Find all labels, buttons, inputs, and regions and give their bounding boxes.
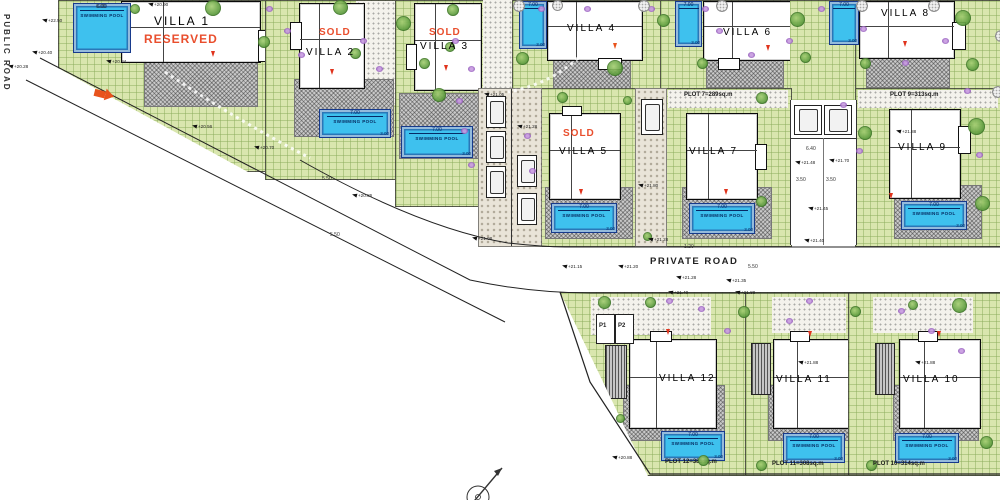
survey-flag-icon [676, 274, 682, 279]
pool-width-label: 3.00 [606, 226, 615, 231]
plot-villa-1: 6.00 SWIMMING POOL VILLA 1 RESERVED [58, 0, 267, 172]
plot-villa-11: 7.00 SWIMMING POOL 3.00 VILLA 11 PLOT 11… [745, 292, 850, 476]
pool-villa-2: 7.00 SWIMMING POOL 3.00 [319, 109, 391, 138]
label-villa-1: VILLA 1 [154, 14, 210, 28]
north-arrow-icon [467, 468, 502, 500]
elevation-marker: +21.15 [562, 264, 582, 269]
elevation-marker: +21.35 [726, 278, 746, 283]
plot-villa-5: 7.00 SWIMMING POOL 3.00 SOLD VILLA 5 [540, 88, 637, 247]
building-villa-9 [889, 109, 961, 199]
pool-length-label: 7.00 [902, 435, 952, 441]
building-villa-12 [629, 339, 717, 429]
entry-marker-icon [766, 45, 770, 51]
plot-caption-7: PLOT 7=289sq.m [684, 92, 733, 98]
pool-width-label: 3.00 [536, 42, 545, 47]
parking-stall [517, 155, 537, 187]
pool-width-label: 3.00 [848, 38, 857, 43]
pool-length-label: 7.00 [908, 203, 959, 209]
pool-width-label: 3.00 [744, 227, 753, 232]
pool-label: SWIMMING POOL [905, 443, 948, 448]
plot-villa-4: 7.00 3.00 VILLA 4 [512, 0, 662, 90]
site-plan: 6.00 SWIMMING POOL VILLA 1 RESERVED 7.00… [0, 0, 1000, 500]
plot-villa-12: P1 P2 7.00 SWIMMING POOL 3.00 VILLA 12 P… [560, 292, 747, 476]
pool-villa-8: 7.00 3.00 [829, 1, 859, 45]
label-villa-11: VILLA 11 [776, 374, 832, 385]
elevation-marker: +20.86 [352, 193, 372, 198]
pool-label: SWIMMING POOL [792, 443, 835, 448]
status-villa-2: SOLD [319, 27, 351, 38]
entry-marker-icon [579, 189, 583, 195]
entry-marker-icon [444, 65, 448, 71]
pool-width-label: 3.00 [462, 151, 471, 156]
status-villa-3: SOLD [429, 27, 461, 38]
pool-length-label: 7.00 [679, 3, 699, 9]
pool-label: SWIMMING POOL [80, 13, 123, 18]
survey-flag-icon [726, 277, 732, 282]
pool-villa-4: 7.00 3.00 [519, 1, 547, 49]
label-villa-8: VILLA 8 [881, 8, 930, 19]
pool-length-label: 7.00 [696, 205, 747, 211]
pool-label: SWIMMING POOL [912, 211, 955, 216]
public-road-label: PUBLIC ROAD [2, 14, 11, 92]
parking-stall-p2 [615, 314, 634, 344]
plot-caption-11: PLOT 11=308sq.m [772, 461, 824, 467]
pool-villa-1: 6.00 SWIMMING POOL [73, 3, 131, 53]
planting-bed [772, 297, 846, 333]
pool-length-label: 7.00 [327, 111, 383, 117]
plot-villa-6: 7.00 3.00 VILLA 6 [660, 0, 797, 90]
survey-flag-icon [352, 192, 358, 197]
pool-width-label: 3.00 [834, 456, 843, 461]
pool-villa-10: 7.00 SWIMMING POOL 3.00 [895, 433, 959, 463]
pool-villa-7: 7.00 SWIMMING POOL 3.00 [689, 203, 755, 234]
pool-width-label: 3.00 [380, 131, 389, 136]
pool-label: SWIMMING POOL [333, 119, 376, 124]
entry-marker-icon [889, 193, 893, 199]
parking-stall [486, 166, 506, 198]
pool-villa-11: 7.00 SWIMMING POOL 3.00 [783, 433, 845, 463]
parking-stall [641, 99, 663, 135]
parking-stall [486, 96, 506, 128]
driveway-strip [478, 88, 542, 247]
label-villa-5: VILLA 5 [559, 146, 608, 157]
plot-caption-10: PLOT 10=314sq.m [873, 461, 925, 467]
parking-stall [824, 105, 852, 135]
pool-villa-6: 7.00 3.00 [675, 1, 702, 47]
pool-villa-9: 7.00 SWIMMING POOL 3.00 [901, 201, 967, 230]
plot-villa-2: 7.00 SWIMMING POOL 3.00 SOLD VILLA 2 [265, 0, 397, 180]
pool-width-label: 3.00 [691, 40, 700, 45]
elevation-marker: +21.28 [676, 275, 696, 280]
patio-villa-1 [144, 61, 258, 107]
pool-length-label: 7.00 [790, 435, 838, 441]
parking-label-p1: P1 [599, 323, 606, 329]
pool-length-label: 7.00 [833, 3, 855, 9]
label-villa-10: VILLA 10 [903, 374, 960, 385]
entry-marker-icon [937, 331, 941, 337]
stair-block [751, 343, 771, 395]
driveway-strip [790, 100, 857, 245]
label-villa-7: VILLA 7 [689, 146, 738, 157]
plot-villa-3: 7.00 SWIMMING POOL 3.00 SOLD VILLA 3 [395, 0, 485, 207]
elevation-marker: +20.28 [8, 64, 28, 69]
elevation-marker: +20.88 [612, 455, 632, 460]
parking-stall [517, 193, 537, 225]
planting-bed [483, 0, 512, 88]
entry-marker-icon [903, 41, 907, 47]
pool-label: SWIMMING POOL [415, 136, 458, 141]
pool-label: SWIMMING POOL [562, 213, 605, 218]
label-villa-4: VILLA 4 [567, 23, 616, 34]
stair-block [605, 345, 627, 399]
survey-flag-icon [612, 454, 618, 459]
pool-villa-5: 7.00 SWIMMING POOL 3.00 [551, 203, 617, 233]
stair-block [875, 343, 895, 395]
pool-length-label: 7.00 [409, 128, 465, 134]
survey-flag-icon [472, 235, 478, 240]
dimension-label: 5.50 [330, 232, 340, 238]
label-villa-12: VILLA 12 [659, 373, 716, 384]
entry-marker-icon [613, 43, 617, 49]
pool-label: SWIMMING POOL [700, 213, 743, 218]
survey-flag-icon [562, 263, 568, 268]
plot-villa-7: 7.00 SWIMMING POOL 3.00 PLOT 7=289sq.m V… [665, 88, 792, 247]
pool-label: SWIMMING POOL [671, 441, 714, 446]
entry-marker-icon [330, 69, 334, 75]
elevation-marker: +21.20 [618, 264, 638, 269]
elevation-marker: +20.40 [32, 50, 52, 55]
pool-villa-3: 7.00 SWIMMING POOL 3.00 [401, 126, 473, 158]
plot-caption-9: PLOT 9=313sq.m [890, 92, 939, 98]
pool-length-label: 7.00 [523, 3, 544, 9]
entry-marker-icon [211, 51, 215, 57]
status-villa-1: RESERVED [144, 32, 218, 46]
parking-stall [486, 131, 506, 163]
plot-villa-9: 7.00 SWIMMING POOL 3.00 PLOT 9=313sq.m V… [855, 88, 1000, 247]
status-villa-5: SOLD [563, 128, 595, 139]
plot-villa-10: 7.00 SWIMMING POOL 3.00 VILLA 10 PLOT 10… [848, 292, 1000, 476]
parking-stall [794, 105, 822, 135]
building-villa-2 [299, 3, 365, 89]
parking-label-p2: P2 [618, 323, 625, 329]
plot-caption-12: PLOT 12=383sq.m [665, 459, 717, 465]
entry-marker-icon [808, 331, 812, 337]
pool-villa-12: 7.00 SWIMMING POOL 3.00 [661, 431, 725, 461]
pool-length-label: 7.00 [558, 205, 609, 211]
driveway-strip [635, 88, 667, 247]
pool-length-label: 6.00 [80, 5, 125, 11]
pool-width-label: 3.00 [948, 456, 957, 461]
label-villa-2: VILLA 2 [306, 47, 355, 58]
pool-width-label: 3.00 [956, 223, 965, 228]
entry-marker-icon [666, 329, 670, 335]
entry-marker-icon [724, 189, 728, 195]
survey-flag-icon [32, 49, 38, 54]
label-villa-3: VILLA 3 [420, 41, 469, 52]
private-road-label: PRIVATE ROAD [650, 256, 738, 267]
label-villa-6: VILLA 6 [723, 27, 772, 38]
survey-flag-icon [618, 263, 624, 268]
survey-flag-icon [42, 17, 48, 22]
planting-bed [873, 297, 973, 333]
parking-stall-p1 [596, 314, 615, 344]
pool-length-label: 7.00 [668, 433, 718, 439]
label-villa-9: VILLA 9 [898, 142, 947, 153]
dimension-label: 5.50 [748, 264, 758, 270]
